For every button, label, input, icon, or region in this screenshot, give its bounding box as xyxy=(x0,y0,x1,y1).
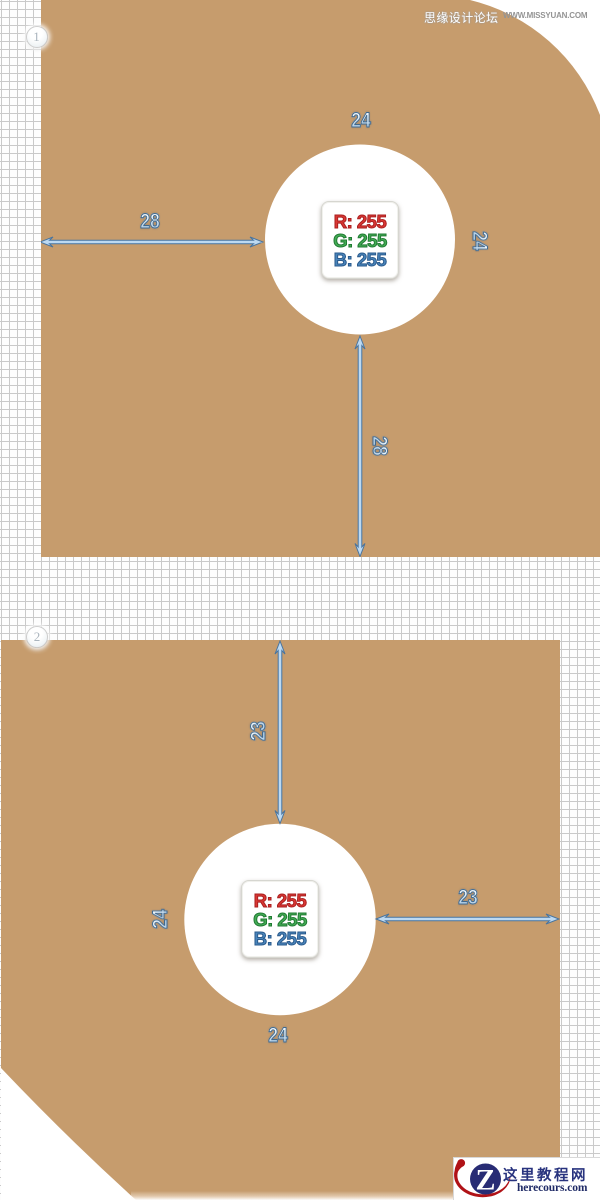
svg-text:Z: Z xyxy=(475,1164,495,1197)
